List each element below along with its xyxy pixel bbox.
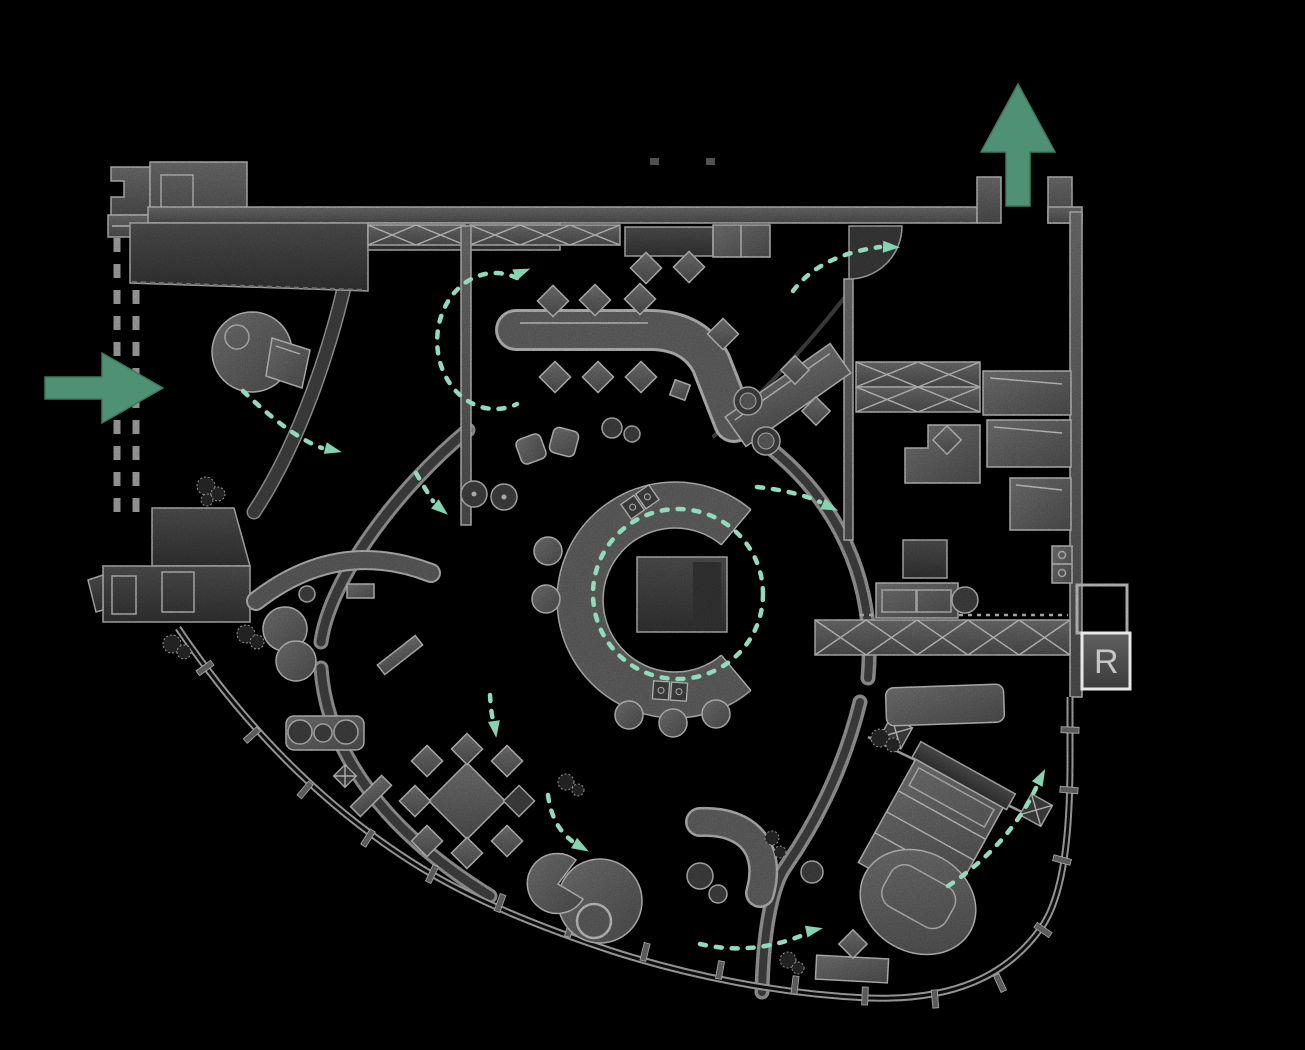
floor-plan-canvas: R: [0, 0, 1305, 1050]
grain-texture: [0, 0, 1305, 1050]
room-marker-label: R: [1094, 643, 1119, 681]
room-marker-box: R: [1082, 633, 1130, 689]
